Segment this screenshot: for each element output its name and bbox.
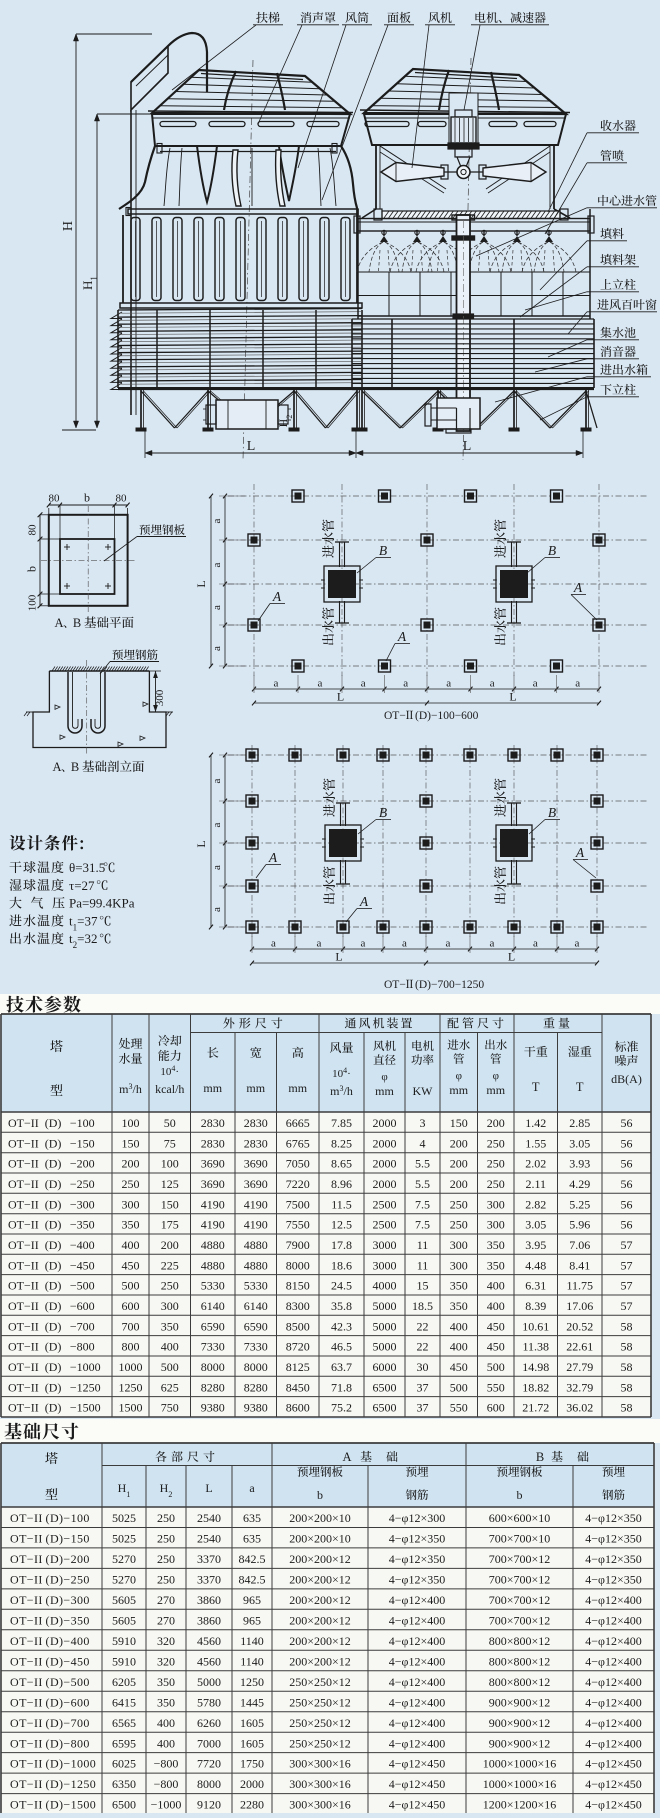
svg-text:A: A <box>52 760 61 774</box>
svg-text:7220: 7220 <box>286 1177 310 1191</box>
svg-text:250×250×12: 250×250×12 <box>289 1736 351 1750</box>
svg-text:150: 150 <box>450 1116 468 1130</box>
svg-text:400: 400 <box>450 1319 468 1333</box>
svg-text:300: 300 <box>154 689 166 706</box>
svg-text:B: B <box>71 760 79 774</box>
svg-text:200×200×12: 200×200×12 <box>289 1654 351 1668</box>
svg-text:8280: 8280 <box>244 1380 268 1394</box>
svg-text:1445: 1445 <box>240 1695 264 1709</box>
svg-text:OT−II (D) −450: OT−II (D) −450 <box>8 1258 95 1272</box>
svg-text:100: 100 <box>161 1157 179 1171</box>
svg-text:T: T <box>532 1080 540 1094</box>
svg-text:a: a <box>446 678 451 690</box>
svg-text:1500: 1500 <box>119 1401 143 1415</box>
svg-text:6665: 6665 <box>286 1116 310 1130</box>
svg-text:14.98: 14.98 <box>522 1360 549 1374</box>
svg-text:50: 50 <box>164 1116 176 1130</box>
svg-text:350: 350 <box>487 1258 505 1272</box>
svg-text:8280: 8280 <box>201 1380 225 1394</box>
svg-text:700×700×10: 700×700×10 <box>489 1532 551 1546</box>
svg-text:965: 965 <box>243 1593 261 1607</box>
svg-text:4−φ12×400: 4−φ12×400 <box>389 1613 445 1627</box>
svg-text:OT−II (D) −800: OT−II (D) −800 <box>8 1340 95 1354</box>
svg-text:4−φ12×400: 4−φ12×400 <box>585 1613 641 1627</box>
svg-text:H: H <box>61 221 76 231</box>
svg-text:800: 800 <box>122 1340 140 1354</box>
svg-text:600×600×10: 600×600×10 <box>489 1511 551 1525</box>
svg-text:1605: 1605 <box>240 1716 264 1730</box>
svg-text:b: b <box>517 1488 523 1502</box>
svg-text:57: 57 <box>621 1258 633 1272</box>
svg-text:OT−II (D)−600: OT−II (D)−600 <box>10 1695 90 1709</box>
svg-text:800×800×12: 800×800×12 <box>489 1634 551 1648</box>
svg-text:a: a <box>533 678 538 690</box>
svg-text:1.55: 1.55 <box>525 1136 546 1150</box>
svg-text:B: B <box>379 805 387 820</box>
svg-text:(D)−100−600: (D)−100−600 <box>415 710 479 722</box>
svg-text:φ: φ <box>381 1071 387 1083</box>
svg-text:450: 450 <box>122 1258 140 1272</box>
svg-text:500: 500 <box>122 1279 140 1293</box>
svg-text:635: 635 <box>243 1532 261 1546</box>
svg-text:6350: 6350 <box>112 1777 136 1791</box>
svg-text:250: 250 <box>157 1552 175 1566</box>
svg-text:mm: mm <box>246 1081 265 1095</box>
svg-text:9380: 9380 <box>201 1401 225 1415</box>
svg-text:L: L <box>194 840 208 847</box>
svg-text:3.93: 3.93 <box>569 1157 590 1171</box>
svg-text:7.85: 7.85 <box>331 1116 352 1130</box>
svg-text:2000: 2000 <box>240 1777 264 1791</box>
svg-text:5605: 5605 <box>112 1593 136 1607</box>
svg-text:OT−II (D)−1000: OT−II (D)−1000 <box>10 1757 96 1771</box>
svg-text:30: 30 <box>417 1360 429 1374</box>
svg-text:200×200×12: 200×200×12 <box>289 1593 351 1607</box>
svg-text:200: 200 <box>487 1116 505 1130</box>
svg-text:a: a <box>402 938 407 950</box>
svg-text:150: 150 <box>122 1136 140 1150</box>
svg-text:A: A <box>397 629 407 644</box>
svg-text:600: 600 <box>487 1401 505 1415</box>
svg-text:4−φ12×400: 4−φ12×400 <box>389 1736 445 1750</box>
svg-text:OT−II (D)−400: OT−II (D)−400 <box>10 1634 90 1648</box>
svg-text:−800: −800 <box>154 1777 179 1791</box>
svg-text:1.42: 1.42 <box>525 1116 546 1130</box>
svg-text:a: a <box>271 938 276 950</box>
svg-text:350: 350 <box>487 1238 505 1252</box>
svg-text:104·: 104· <box>332 1066 351 1081</box>
svg-text:OT−II (D)−450: OT−II (D)−450 <box>10 1654 90 1668</box>
svg-text:φ: φ <box>493 1070 499 1082</box>
svg-text:T: T <box>576 1080 584 1094</box>
svg-text:7550: 7550 <box>286 1218 310 1232</box>
svg-text:400: 400 <box>487 1299 505 1313</box>
svg-text:350: 350 <box>122 1218 140 1232</box>
svg-text:350: 350 <box>161 1319 179 1333</box>
svg-text:42.3: 42.3 <box>331 1319 352 1333</box>
svg-text:2540: 2540 <box>197 1511 221 1525</box>
svg-text:75.2: 75.2 <box>331 1401 352 1415</box>
svg-text:150: 150 <box>161 1197 179 1211</box>
svg-text:8000: 8000 <box>244 1360 268 1374</box>
svg-text:4000: 4000 <box>373 1279 397 1293</box>
svg-text:(D)−700−1250: (D)−700−1250 <box>415 979 484 991</box>
svg-text:1000: 1000 <box>119 1360 143 1374</box>
svg-text:3690: 3690 <box>201 1177 225 1191</box>
svg-text:635: 635 <box>243 1511 261 1525</box>
svg-text:250: 250 <box>157 1511 175 1525</box>
svg-text:4−φ12×450: 4−φ12×450 <box>585 1757 641 1771</box>
svg-text:270: 270 <box>157 1613 175 1627</box>
svg-text:2000: 2000 <box>373 1157 397 1171</box>
svg-text:8.39: 8.39 <box>525 1299 546 1313</box>
svg-text:400: 400 <box>157 1716 175 1730</box>
svg-text:OT−: OT− <box>384 979 406 991</box>
svg-text:56: 56 <box>621 1218 633 1232</box>
svg-text:300: 300 <box>122 1197 140 1211</box>
svg-text:−800: −800 <box>154 1757 179 1771</box>
svg-text:200: 200 <box>450 1157 468 1171</box>
svg-text:5270: 5270 <box>112 1573 136 1587</box>
svg-text:4−φ12×400: 4−φ12×400 <box>585 1695 641 1709</box>
svg-text:OT−II (D) −600: OT−II (D) −600 <box>8 1299 95 1313</box>
svg-text:L: L <box>463 439 472 454</box>
svg-text:4−φ12×400: 4−φ12×400 <box>585 1736 641 1750</box>
svg-text:320: 320 <box>157 1634 175 1648</box>
svg-text:4190: 4190 <box>201 1197 225 1211</box>
svg-text:7.5: 7.5 <box>415 1218 430 1232</box>
svg-text:a: a <box>533 938 538 950</box>
svg-text:4−φ12×350: 4−φ12×350 <box>389 1532 445 1546</box>
svg-text:4−φ12×400: 4−φ12×400 <box>389 1695 445 1709</box>
svg-text:300: 300 <box>450 1238 468 1252</box>
svg-text:300×300×16: 300×300×16 <box>289 1798 351 1812</box>
svg-text:250: 250 <box>161 1279 179 1293</box>
svg-text:1000×1000×16: 1000×1000×16 <box>483 1777 557 1791</box>
svg-text:80: 80 <box>49 493 61 505</box>
svg-text:57: 57 <box>621 1299 633 1313</box>
svg-text:4−φ12×400: 4−φ12×400 <box>585 1675 641 1689</box>
svg-text:250: 250 <box>450 1218 468 1232</box>
svg-text:θ=31.5: θ=31.5 <box>69 860 105 875</box>
svg-text:250: 250 <box>487 1136 505 1150</box>
svg-text:3370: 3370 <box>197 1552 221 1566</box>
svg-text:18.5: 18.5 <box>412 1299 433 1313</box>
svg-text:4−φ12×400: 4−φ12×400 <box>389 1675 445 1689</box>
svg-text:6500: 6500 <box>373 1401 397 1415</box>
svg-text:4880: 4880 <box>201 1258 225 1272</box>
svg-text:10.61: 10.61 <box>522 1319 549 1333</box>
svg-text:4880: 4880 <box>244 1258 268 1272</box>
svg-text:a: a <box>249 1481 255 1495</box>
svg-text:4190: 4190 <box>244 1197 268 1211</box>
svg-text:4−φ12×400: 4−φ12×400 <box>585 1593 641 1607</box>
svg-text:56: 56 <box>621 1136 633 1150</box>
svg-text:OT−II (D) −400: OT−II (D) −400 <box>8 1238 95 1252</box>
svg-text:mm: mm <box>203 1081 222 1095</box>
svg-text:3690: 3690 <box>244 1177 268 1191</box>
svg-text:5910: 5910 <box>112 1654 136 1668</box>
svg-text:24.5: 24.5 <box>331 1279 352 1293</box>
svg-text:550: 550 <box>450 1401 468 1415</box>
svg-text:L: L <box>335 950 342 964</box>
svg-text:a: a <box>274 678 279 690</box>
svg-text:56: 56 <box>621 1157 633 1171</box>
svg-text:kcal/h: kcal/h <box>155 1082 184 1096</box>
svg-text:450: 450 <box>487 1319 505 1333</box>
svg-text:4190: 4190 <box>201 1218 225 1232</box>
svg-text:6590: 6590 <box>244 1319 268 1333</box>
svg-text:6590: 6590 <box>201 1319 225 1333</box>
svg-text:37: 37 <box>417 1401 429 1415</box>
svg-text:900×900×12: 900×900×12 <box>489 1736 551 1750</box>
svg-text:2.85: 2.85 <box>569 1116 590 1130</box>
svg-text:4−φ12×450: 4−φ12×450 <box>585 1777 641 1791</box>
svg-text:5000: 5000 <box>373 1319 397 1333</box>
svg-text:4−φ12×350: 4−φ12×350 <box>585 1532 641 1546</box>
svg-text:OT−II (D) −1500: OT−II (D) −1500 <box>8 1401 101 1415</box>
svg-text:250: 250 <box>450 1197 468 1211</box>
svg-text:5025: 5025 <box>112 1511 136 1525</box>
svg-text:A: A <box>342 1450 351 1464</box>
svg-text:300: 300 <box>487 1218 505 1232</box>
svg-text:OT−II (D) −300: OT−II (D) −300 <box>8 1197 95 1211</box>
svg-text:4880: 4880 <box>201 1238 225 1252</box>
svg-text:a: a <box>211 518 223 523</box>
svg-text:71.8: 71.8 <box>331 1380 352 1394</box>
svg-text:a: a <box>318 678 323 690</box>
svg-text:700×700×12: 700×700×12 <box>489 1593 551 1607</box>
svg-text:1750: 1750 <box>240 1757 264 1771</box>
svg-text:3.05: 3.05 <box>569 1136 590 1150</box>
svg-text:250×250×12: 250×250×12 <box>289 1675 351 1689</box>
svg-text:a: a <box>211 865 223 870</box>
svg-text:a: a <box>211 646 223 651</box>
svg-text:B: B <box>536 1450 544 1464</box>
svg-text:4−φ12×450: 4−φ12×450 <box>585 1798 641 1812</box>
svg-text:800×800×12: 800×800×12 <box>489 1675 551 1689</box>
svg-text:57: 57 <box>621 1238 633 1252</box>
svg-text:4560: 4560 <box>197 1634 221 1648</box>
svg-text:700×700×12: 700×700×12 <box>489 1613 551 1627</box>
svg-text:6.31: 6.31 <box>525 1279 546 1293</box>
svg-text:1140: 1140 <box>240 1634 264 1648</box>
svg-text:b: b <box>317 1488 323 1502</box>
svg-text:2000: 2000 <box>373 1177 397 1191</box>
svg-text:3860: 3860 <box>197 1613 221 1627</box>
svg-text:11: 11 <box>417 1238 429 1252</box>
svg-text:18.6: 18.6 <box>331 1258 352 1272</box>
svg-text:125: 125 <box>161 1177 179 1191</box>
svg-text:4−φ12×350: 4−φ12×350 <box>585 1552 641 1566</box>
svg-text:L: L <box>247 439 256 454</box>
svg-text:6415: 6415 <box>112 1695 136 1709</box>
svg-text:B: B <box>548 543 556 558</box>
svg-text:3000: 3000 <box>373 1258 397 1272</box>
svg-text:200: 200 <box>161 1238 179 1252</box>
svg-text:9380: 9380 <box>244 1401 268 1415</box>
svg-text:2000: 2000 <box>373 1136 397 1150</box>
svg-text:4−φ12×400: 4−φ12×400 <box>585 1634 641 1648</box>
svg-text:4−φ12×400: 4−φ12×400 <box>389 1654 445 1668</box>
svg-text:32.79: 32.79 <box>566 1380 593 1394</box>
svg-text:5.5: 5.5 <box>415 1157 430 1171</box>
svg-text:9120: 9120 <box>197 1798 221 1812</box>
svg-text:900×900×12: 900×900×12 <box>489 1695 551 1709</box>
svg-text:12.5: 12.5 <box>331 1218 352 1232</box>
svg-text:1200×1200×16: 1200×1200×16 <box>483 1798 557 1812</box>
svg-text:2000: 2000 <box>373 1116 397 1130</box>
svg-text:OT−: OT− <box>384 710 406 722</box>
svg-text:4880: 4880 <box>244 1238 268 1252</box>
svg-text:600: 600 <box>122 1299 140 1313</box>
svg-text:2.11: 2.11 <box>525 1177 546 1191</box>
svg-text:b: b <box>25 566 39 572</box>
svg-text:6000: 6000 <box>373 1360 397 1374</box>
svg-text:8.25: 8.25 <box>331 1136 352 1150</box>
svg-text:200×200×12: 200×200×12 <box>289 1613 351 1627</box>
svg-text:7.5: 7.5 <box>415 1197 430 1211</box>
svg-text:4−φ12×300: 4−φ12×300 <box>389 1511 445 1525</box>
svg-text:300: 300 <box>161 1299 179 1313</box>
svg-text:450: 450 <box>487 1340 505 1354</box>
svg-text:270: 270 <box>157 1593 175 1607</box>
svg-text:KW: KW <box>413 1084 434 1098</box>
svg-text:OT−II (D) −150: OT−II (D) −150 <box>8 1136 95 1150</box>
svg-text:6565: 6565 <box>112 1716 136 1730</box>
svg-text:L: L <box>194 580 208 587</box>
svg-text:8150: 8150 <box>286 1279 310 1293</box>
svg-text:400: 400 <box>450 1340 468 1354</box>
svg-text:mm: mm <box>449 1083 468 1097</box>
svg-text:300×300×16: 300×300×16 <box>289 1757 351 1771</box>
svg-text:3: 3 <box>420 1116 426 1130</box>
svg-text:OT−II (D)−350: OT−II (D)−350 <box>10 1613 90 1627</box>
svg-text:200×200×10: 200×200×10 <box>289 1532 351 1546</box>
svg-text:2830: 2830 <box>244 1136 268 1150</box>
svg-text:5330: 5330 <box>244 1279 268 1293</box>
svg-text:200×200×10: 200×200×10 <box>289 1511 351 1525</box>
svg-text:5605: 5605 <box>112 1613 136 1627</box>
svg-text:4−φ12×400: 4−φ12×400 <box>389 1593 445 1607</box>
svg-text:4.48: 4.48 <box>525 1258 546 1272</box>
svg-text:A: A <box>272 589 282 604</box>
svg-text:5.5: 5.5 <box>415 1177 430 1191</box>
svg-text:a: a <box>211 778 223 783</box>
svg-text:6500: 6500 <box>373 1380 397 1394</box>
svg-text:2830: 2830 <box>201 1136 225 1150</box>
svg-text:350: 350 <box>157 1695 175 1709</box>
svg-text:4−φ12×400: 4−φ12×400 <box>585 1716 641 1730</box>
svg-text:700×700×12: 700×700×12 <box>489 1573 551 1587</box>
svg-text:B: B <box>548 805 556 820</box>
svg-text:8.96: 8.96 <box>331 1177 352 1191</box>
svg-text:22: 22 <box>417 1319 429 1333</box>
svg-text:mm: mm <box>288 1081 307 1095</box>
svg-text:7050: 7050 <box>286 1157 310 1171</box>
svg-text:80: 80 <box>116 493 128 505</box>
svg-text:OT−II (D)−800: OT−II (D)−800 <box>10 1736 90 1750</box>
svg-text:8300: 8300 <box>286 1299 310 1313</box>
svg-text:8000: 8000 <box>201 1360 225 1374</box>
svg-text:OT−II (D)−250: OT−II (D)−250 <box>10 1573 90 1587</box>
svg-text:350: 350 <box>450 1299 468 1313</box>
svg-text:250: 250 <box>487 1177 505 1191</box>
svg-text:7330: 7330 <box>244 1340 268 1354</box>
svg-text:2500: 2500 <box>373 1218 397 1232</box>
svg-text:400: 400 <box>161 1340 179 1354</box>
svg-text:b: b <box>84 491 90 505</box>
svg-text:11.75: 11.75 <box>566 1279 593 1293</box>
svg-text:57: 57 <box>621 1279 633 1293</box>
svg-text:842.5: 842.5 <box>239 1552 266 1566</box>
svg-text:4−φ12×450: 4−φ12×450 <box>389 1798 445 1812</box>
svg-text:A: A <box>575 845 585 860</box>
svg-text:20.52: 20.52 <box>566 1319 593 1333</box>
svg-text:250: 250 <box>487 1157 505 1171</box>
svg-text:A: A <box>268 850 278 865</box>
svg-text:a: a <box>317 938 322 950</box>
svg-text:4190: 4190 <box>244 1218 268 1232</box>
svg-text:320: 320 <box>157 1654 175 1668</box>
svg-text:6140: 6140 <box>244 1299 268 1313</box>
svg-text:75: 75 <box>164 1136 176 1150</box>
svg-text:a: a <box>211 907 223 912</box>
svg-text:2500: 2500 <box>373 1197 397 1211</box>
svg-text:A: A <box>573 580 583 595</box>
svg-text:5000: 5000 <box>373 1299 397 1313</box>
svg-text:a: a <box>490 938 495 950</box>
svg-text:φ: φ <box>456 1070 462 1082</box>
svg-text:900×900×12: 900×900×12 <box>489 1716 551 1730</box>
svg-text:7330: 7330 <box>201 1340 225 1354</box>
svg-text:3860: 3860 <box>197 1593 221 1607</box>
svg-text:5000: 5000 <box>373 1340 397 1354</box>
svg-text:6205: 6205 <box>112 1675 136 1689</box>
svg-text:450: 450 <box>450 1360 468 1374</box>
svg-text:700×700×12: 700×700×12 <box>489 1552 551 1566</box>
svg-text:6260: 6260 <box>197 1716 221 1730</box>
svg-text:mm: mm <box>375 1084 394 1098</box>
svg-text:4−φ12×450: 4−φ12×450 <box>389 1757 445 1771</box>
svg-text:L: L <box>205 1481 212 1495</box>
svg-text:8.65: 8.65 <box>331 1157 352 1171</box>
svg-text:350: 350 <box>157 1675 175 1689</box>
svg-text:200: 200 <box>450 1177 468 1191</box>
svg-text:400: 400 <box>122 1238 140 1252</box>
svg-text:11: 11 <box>417 1258 429 1272</box>
svg-text:5.25: 5.25 <box>569 1197 590 1211</box>
svg-text:100: 100 <box>122 1116 140 1130</box>
svg-text:58: 58 <box>621 1401 633 1415</box>
svg-text:OT−II (D)−150: OT−II (D)−150 <box>10 1532 90 1546</box>
svg-text:2540: 2540 <box>197 1532 221 1546</box>
svg-text:8450: 8450 <box>286 1380 310 1394</box>
svg-text:L: L <box>509 690 516 704</box>
svg-text:200×200×12: 200×200×12 <box>289 1634 351 1648</box>
svg-text:OT−II (D) −1250: OT−II (D) −1250 <box>8 1380 101 1394</box>
svg-text:250: 250 <box>122 1177 140 1191</box>
svg-text:8125: 8125 <box>286 1360 310 1374</box>
svg-text:56: 56 <box>621 1177 633 1191</box>
svg-text:a: a <box>211 562 223 567</box>
svg-text:965: 965 <box>243 1613 261 1627</box>
svg-text:27.79: 27.79 <box>566 1360 593 1374</box>
svg-text:OT−II (D)−700: OT−II (D)−700 <box>10 1716 90 1730</box>
svg-text:8000: 8000 <box>197 1777 221 1791</box>
svg-text:7900: 7900 <box>286 1238 310 1252</box>
svg-text:350: 350 <box>450 1279 468 1293</box>
